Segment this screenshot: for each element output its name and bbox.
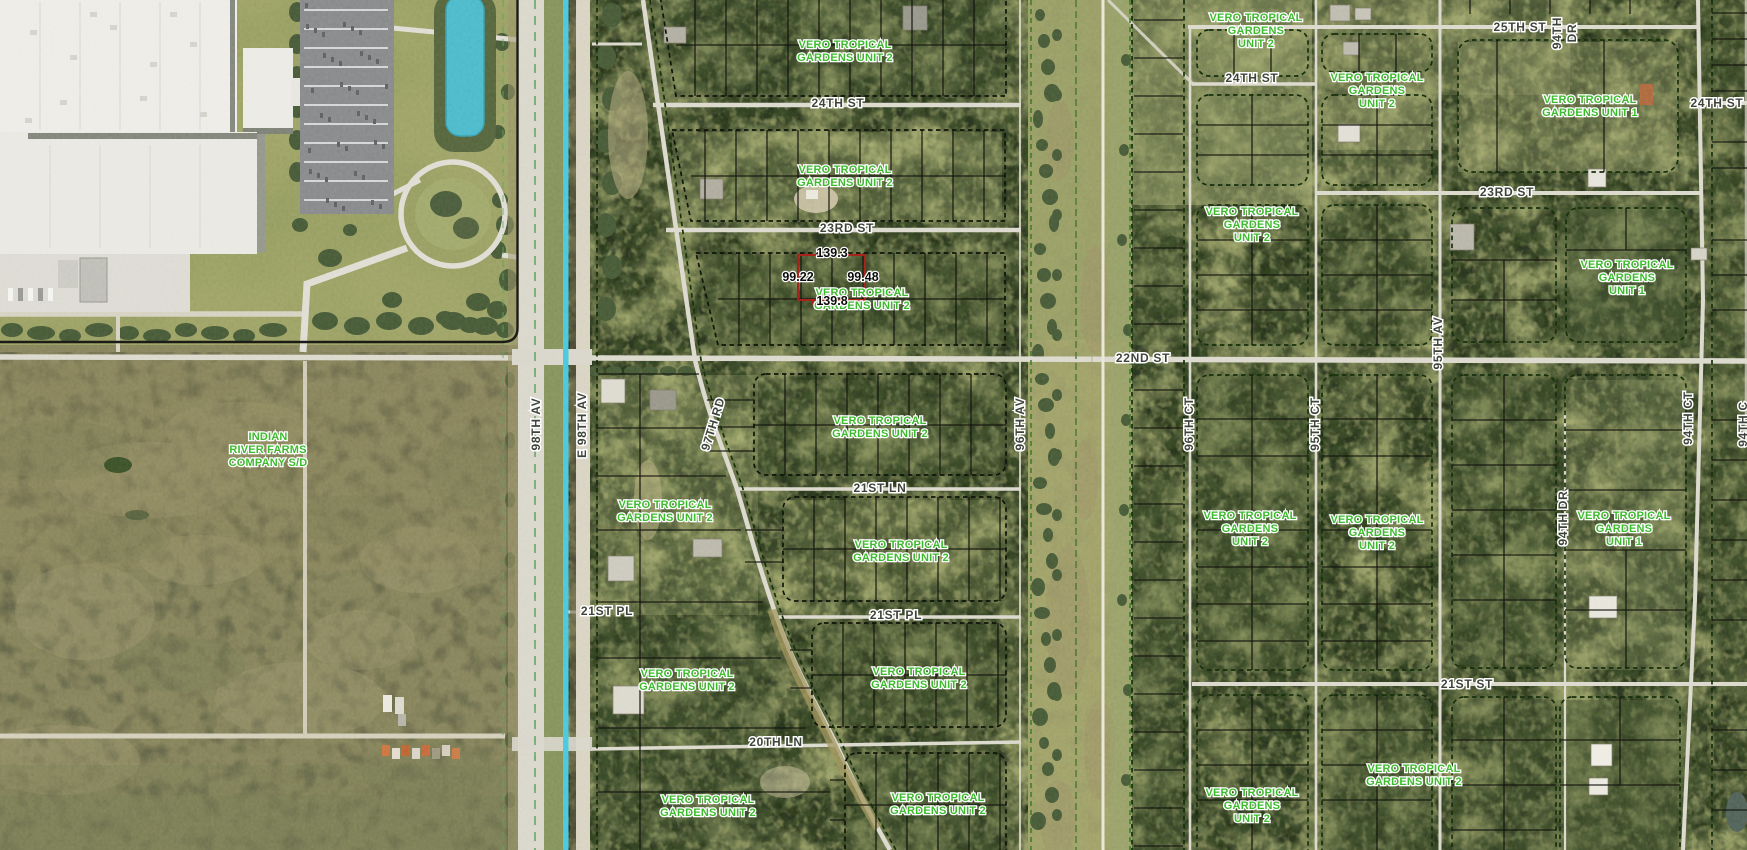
svg-text:UNIT 2: UNIT 2 — [1238, 38, 1274, 50]
svg-text:UNIT 2: UNIT 2 — [1234, 813, 1270, 825]
svg-text:VERO TROPICAL: VERO TROPICAL — [854, 539, 947, 551]
svg-text:GARDENS: GARDENS — [1222, 523, 1278, 535]
svg-text:139.8: 139.8 — [816, 294, 847, 308]
svg-text:GARDENS UNIT 2: GARDENS UNIT 2 — [871, 679, 967, 691]
svg-text:21ST PL: 21ST PL — [581, 604, 633, 618]
svg-text:E 98TH AV: E 98TH AV — [575, 392, 589, 458]
svg-text:21ST PL: 21ST PL — [870, 608, 922, 622]
svg-text:139.3: 139.3 — [816, 246, 847, 260]
svg-text:96TH CT: 96TH CT — [1182, 397, 1196, 451]
svg-text:GARDENS UNIT 2: GARDENS UNIT 2 — [797, 177, 893, 189]
svg-text:UNIT 2: UNIT 2 — [1359, 540, 1395, 552]
svg-text:GARDENS UNIT 2: GARDENS UNIT 2 — [832, 428, 928, 440]
svg-text:VERO TROPICAL: VERO TROPICAL — [1205, 787, 1298, 799]
svg-text:UNIT 1: UNIT 1 — [1609, 285, 1645, 297]
svg-text:GARDENS UNIT 2: GARDENS UNIT 2 — [853, 552, 949, 564]
svg-text:94TH C: 94TH C — [1736, 401, 1747, 447]
svg-text:VERO TROPICAL: VERO TROPICAL — [661, 794, 754, 806]
svg-text:VERO TROPICAL: VERO TROPICAL — [1577, 510, 1670, 522]
svg-text:GARDENS UNIT 2: GARDENS UNIT 2 — [660, 807, 756, 819]
svg-text:GARDENS: GARDENS — [1224, 219, 1280, 231]
svg-text:VERO TROPICAL: VERO TROPICAL — [798, 39, 891, 51]
svg-text:GARDENS: GARDENS — [1224, 800, 1280, 812]
svg-text:VERO TROPICAL: VERO TROPICAL — [1580, 259, 1673, 271]
svg-text:99.48: 99.48 — [847, 270, 878, 284]
svg-text:GARDENS: GARDENS — [1599, 272, 1655, 284]
svg-text:25TH ST: 25TH ST — [1494, 20, 1547, 34]
svg-text:GARDENS UNIT 2: GARDENS UNIT 2 — [639, 681, 735, 693]
svg-text:24TH ST: 24TH ST — [1226, 71, 1279, 85]
svg-text:21ST ST: 21ST ST — [1441, 677, 1493, 691]
svg-text:VERO TROPICAL: VERO TROPICAL — [640, 668, 733, 680]
svg-text:20TH LN: 20TH LN — [749, 735, 803, 749]
svg-text:GARDENS UNIT 2: GARDENS UNIT 2 — [797, 52, 893, 64]
svg-text:GARDENS: GARDENS — [1228, 25, 1284, 37]
svg-text:99.22: 99.22 — [782, 270, 813, 284]
svg-text:22ND ST: 22ND ST — [1116, 351, 1170, 365]
svg-text:GARDENS: GARDENS — [1349, 85, 1405, 97]
svg-text:GARDENS UNIT 2: GARDENS UNIT 2 — [617, 512, 713, 524]
svg-text:GARDENS: GARDENS — [1349, 527, 1405, 539]
svg-text:VERO TROPICAL: VERO TROPICAL — [872, 666, 965, 678]
svg-text:94TH: 94TH — [1550, 17, 1564, 49]
svg-text:GARDENS UNIT 2: GARDENS UNIT 2 — [890, 805, 986, 817]
svg-text:24TH ST: 24TH ST — [1691, 96, 1744, 110]
svg-text:94TH DR: 94TH DR — [1556, 491, 1570, 546]
svg-text:UNIT 2: UNIT 2 — [1359, 98, 1395, 110]
svg-text:VERO TROPICAL: VERO TROPICAL — [1209, 12, 1302, 24]
svg-text:98TH AV: 98TH AV — [529, 398, 543, 451]
svg-text:GARDENS UNIT 2: GARDENS UNIT 2 — [1366, 776, 1462, 788]
svg-text:24TH ST: 24TH ST — [812, 96, 865, 110]
svg-text:UNIT 2: UNIT 2 — [1232, 536, 1268, 548]
svg-text:96TH AV: 96TH AV — [1013, 398, 1027, 451]
svg-text:VERO TROPICAL: VERO TROPICAL — [891, 792, 984, 804]
svg-text:VERO TROPICAL: VERO TROPICAL — [1367, 763, 1460, 775]
svg-text:UNIT 1: UNIT 1 — [1606, 536, 1642, 548]
svg-text:DR: DR — [1565, 24, 1579, 43]
svg-text:VERO TROPICAL: VERO TROPICAL — [1205, 206, 1298, 218]
svg-text:GARDENS UNIT 1: GARDENS UNIT 1 — [1542, 107, 1638, 119]
svg-text:95TH AV: 95TH AV — [1431, 317, 1445, 370]
svg-text:23RD ST: 23RD ST — [820, 221, 874, 235]
svg-text:VERO TROPICAL: VERO TROPICAL — [1543, 94, 1636, 106]
svg-text:VERO TROPICAL: VERO TROPICAL — [618, 499, 711, 511]
svg-text:VERO TROPICAL: VERO TROPICAL — [798, 164, 891, 176]
svg-text:INDIAN: INDIAN — [248, 431, 287, 443]
svg-text:94TH CT: 94TH CT — [1681, 391, 1695, 445]
svg-text:23RD ST: 23RD ST — [1480, 185, 1534, 199]
svg-text:VERO TROPICAL: VERO TROPICAL — [833, 415, 926, 427]
svg-text:GARDENS: GARDENS — [1596, 523, 1652, 535]
svg-text:UNIT 2: UNIT 2 — [1234, 232, 1270, 244]
svg-text:RIVER FARMS: RIVER FARMS — [229, 444, 306, 456]
svg-text:VERO TROPICAL: VERO TROPICAL — [1330, 514, 1423, 526]
svg-text:VERO TROPICAL: VERO TROPICAL — [1330, 72, 1423, 84]
svg-text:21ST LN: 21ST LN — [854, 481, 907, 495]
svg-text:VERO TROPICAL: VERO TROPICAL — [1203, 510, 1296, 522]
svg-text:95TH CT: 95TH CT — [1308, 397, 1322, 451]
svg-text:COMPANY S/D: COMPANY S/D — [229, 457, 308, 469]
